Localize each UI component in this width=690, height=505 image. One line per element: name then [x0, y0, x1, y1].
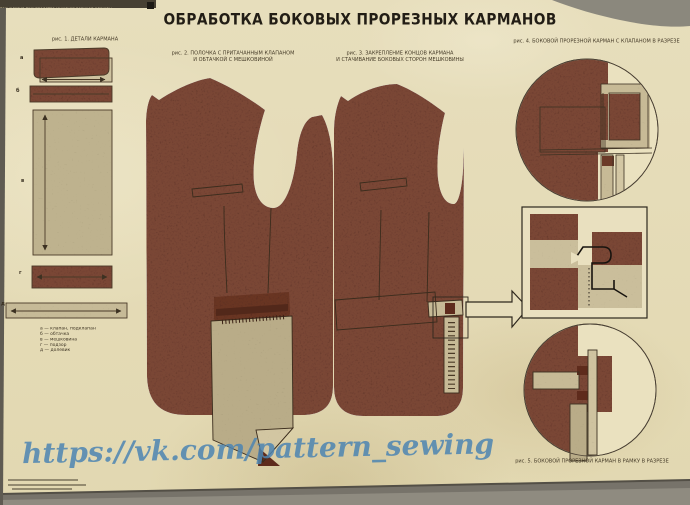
- flap-piece: [34, 48, 109, 78]
- part-label-v: в: [21, 178, 24, 184]
- backdrop-top-right: [552, 0, 690, 27]
- backdrop-left-sliver: [0, 0, 6, 505]
- fig4-caption: рис. 4. БОКОВОЙ ПРОРЕЗНОЙ КАРМАН С КЛАПА…: [503, 38, 690, 45]
- square-cross-section: [522, 207, 647, 318]
- fig1-legend: а — клапан, подклапан б — обтачка в — ме…: [40, 326, 144, 353]
- photo-of-poster: технология производства мужской верхней …: [0, 0, 690, 505]
- fig5-cross-section: [510, 320, 656, 461]
- fig2-caption-line2: И ОБТАЧКОЙ С МЕШКОВИНОЙ: [148, 57, 318, 64]
- detail-arrow-icon: [466, 291, 528, 327]
- poster-title: ОБРАБОТКА БОКОВЫХ ПРОРЕЗНЫХ КАРМАНОВ: [164, 11, 507, 29]
- registration-mark-icon: [147, 2, 154, 9]
- fig3-caption: рис. 3. ЗАКРЕПЛЕНИЕ КОНЦОВ КАРМАНА И СТА…: [315, 50, 485, 63]
- top-margin-strip: технология производства мужской верхней …: [0, 0, 156, 8]
- imprint-line: [12, 488, 72, 490]
- imprint-line: [8, 484, 86, 486]
- poster-graphics: [0, 0, 690, 505]
- part-label-a: а: [20, 55, 23, 61]
- fig2-caption: рис. 2. ПОЛОЧКА С ПРИТАЧАННЫМ КЛАПАНОМ И…: [148, 50, 318, 63]
- fig1-caption: рис. 1. ДЕТАЛИ КАРМАНА: [42, 36, 128, 43]
- part-label-b: б: [16, 88, 19, 94]
- legend-item: д — долевик: [40, 348, 144, 353]
- fig3-caption-line2: И СТАЧИВАНИЕ БОКОВЫХ СТОРОН МЕШКОВИНЫ: [315, 57, 485, 64]
- fig5-caption: рис. 5. БОКОВОЙ ПРОРЕЗНОЙ КАРМАН В РАМКУ…: [500, 458, 684, 465]
- imprint-line: [8, 479, 78, 481]
- part-label-g: г: [19, 270, 22, 276]
- top-strip-text: технология производства мужской верхней …: [0, 7, 112, 8]
- fig4-cross-section: [500, 50, 658, 215]
- part-label-d: д: [1, 301, 5, 307]
- pocket-knot: [445, 303, 455, 314]
- bag-side-strip: [444, 317, 459, 393]
- stay-strip-piece: [6, 303, 127, 318]
